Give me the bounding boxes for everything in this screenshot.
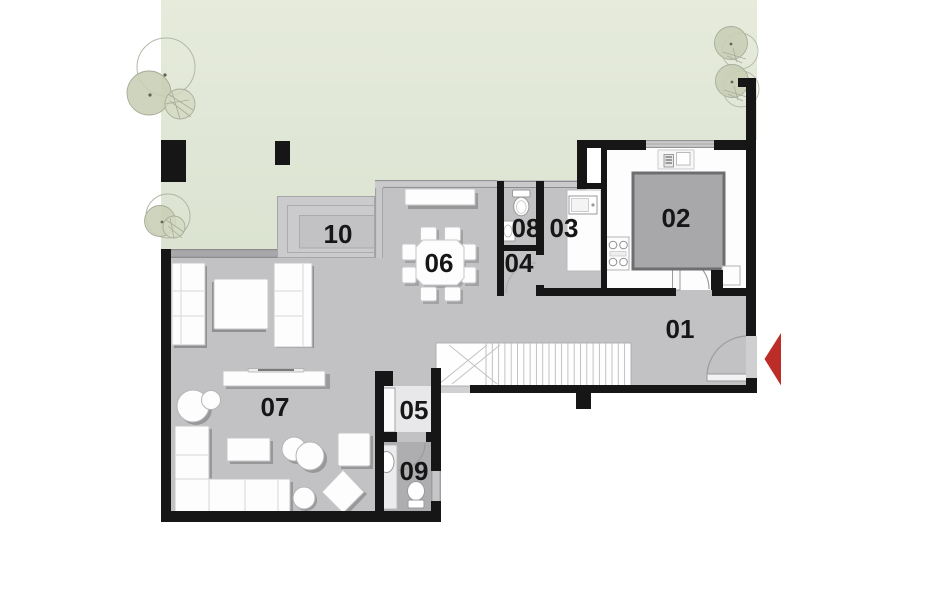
svg-text:04: 04 [505, 248, 534, 278]
svg-text:09: 09 [400, 456, 429, 486]
svg-text:06: 06 [425, 248, 454, 278]
svg-text:02: 02 [662, 203, 691, 233]
svg-text:10: 10 [324, 219, 353, 249]
svg-text:07: 07 [261, 392, 290, 422]
svg-text:03: 03 [550, 213, 579, 243]
svg-text:01: 01 [666, 314, 695, 344]
svg-text:08: 08 [512, 213, 541, 243]
svg-text:05: 05 [400, 395, 429, 425]
